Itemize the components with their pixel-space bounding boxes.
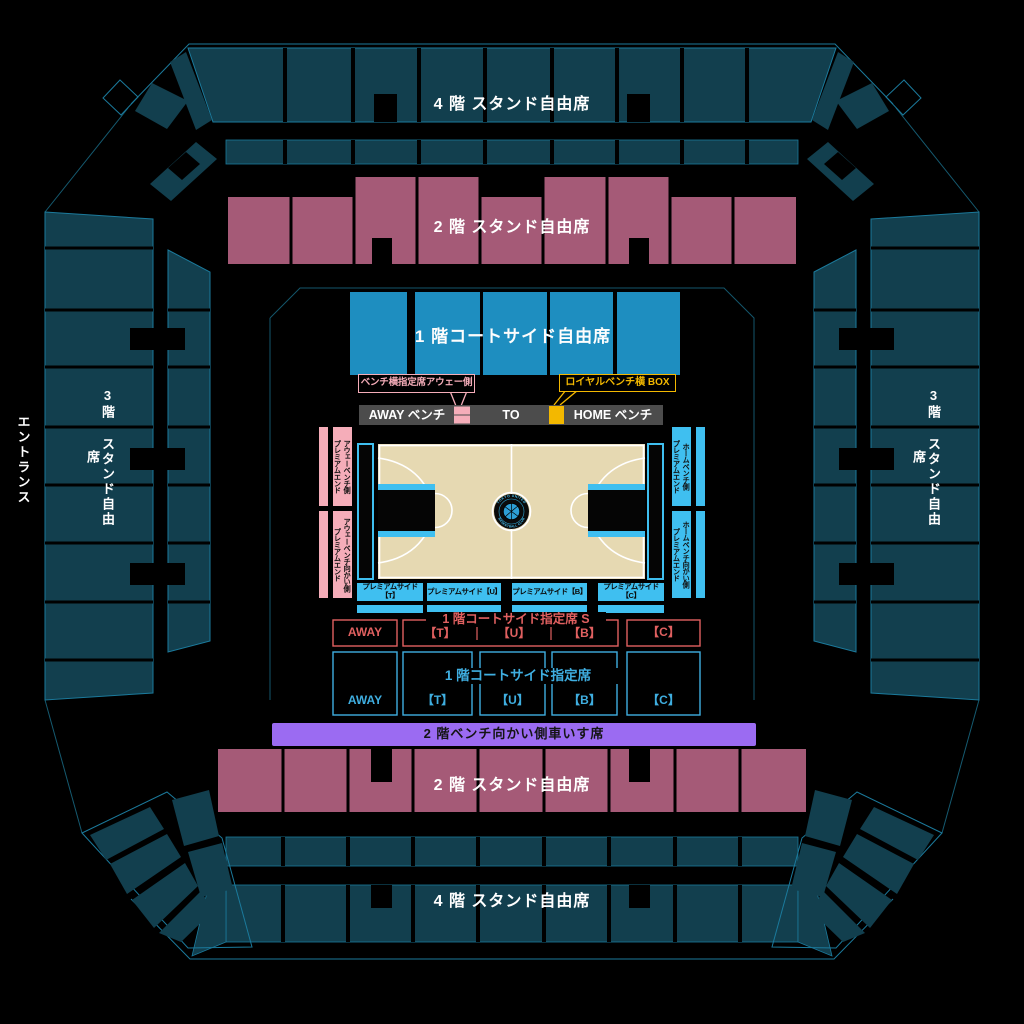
callout-line-bench-side-away [450,391,467,406]
label-courtside-s-b: 【B】 [551,622,618,646]
label-courtside-u: 【U】 [480,690,545,712]
courtside-strip-right [648,444,663,579]
label-premium-end-home-side: ホームベンチ側 プレミアムエンド [672,427,691,506]
label-wheelchair-2f: 2 階ベンチ向かい側車いす席 [272,723,756,746]
callout-royal-box[interactable]: ロイヤルベンチ横 BOX [559,374,676,392]
label-3f-left: 3階 スタンド自由席 [87,385,111,530]
section-3f-right[interactable] [814,212,979,700]
label-premium-end-home-opposite: ホームベンチ向かい側 プレミアムエンド [672,511,691,598]
seat-map-canvas: TOKYO UNITED BASKETBALL CLUB [0,0,1024,1024]
label-2f-top: 2 階 スタンド自由席 [312,215,712,242]
label-premium-side-t: プレミアムサイド【T】 [357,583,423,601]
label-1f-courtside-free: 1 階コートサイド自由席 [333,322,693,352]
label-2f-bottom: 2 階 スタンド自由席 [312,773,712,800]
label-premium-end-away-opposite: アウェーベンチ向かい側 プレミアムエンド [333,511,352,598]
bench-side-away-seat-2[interactable] [454,416,470,424]
label-courtside-s-t: 【T】 [403,622,477,646]
label-courtside-away: AWAY [333,690,397,712]
label-3f-right: 3階 スタンド自由席 [913,385,937,530]
label-to: TO [495,405,527,425]
label-courtside-s-u: 【U】 [477,622,551,646]
royal-box-seat[interactable] [549,406,564,424]
label-premium-side-u: プレミアムサイド【U】 [427,583,501,601]
label-courtside-c: 【C】 [627,690,700,712]
label-4f-bottom: 4 階 スタンド自由席 [312,889,712,916]
label-4f-top: 4 階 スタンド自由席 [312,92,712,119]
section-3f-left[interactable] [45,212,210,700]
label-premium-side-c: プレミアムサイド【C】 [598,583,664,601]
bench-side-away-seat[interactable] [454,407,470,415]
label-away-bench: AWAY ベンチ [363,405,451,425]
strip-row-bottom[interactable] [226,837,798,866]
courtside-strip-left [358,444,373,579]
label-premium-end-away-side: アウェーベンチ側 プレミアムエンド [333,427,352,506]
strip-row-top[interactable] [226,140,798,164]
arena-seat-map: TOKYO UNITED BASKETBALL CLUB [0,0,1024,1024]
label-courtside-s-c: 【C】 [627,620,700,646]
basketball-court: TOKYO UNITED BASKETBALL CLUB [378,444,645,579]
label-courtside-t: 【T】 [403,690,472,712]
label-courtside-b: 【B】 [552,690,617,712]
label-courtside-s-away: AWAY [333,620,397,646]
club-logo: TOKYO UNITED BASKETBALL CLUB [494,494,529,529]
label-premium-side-b: プレミアムサイド【B】 [512,583,587,601]
title-courtside-reserved: 1 階コートサイド指定席 [418,668,618,684]
label-entrance: エントランス [10,405,34,515]
callout-bench-side-away[interactable]: ベンチ横指定席アウェー側 [358,374,475,393]
label-home-bench: HOME ベンチ [568,405,658,425]
callout-line-royal-box [554,390,578,405]
